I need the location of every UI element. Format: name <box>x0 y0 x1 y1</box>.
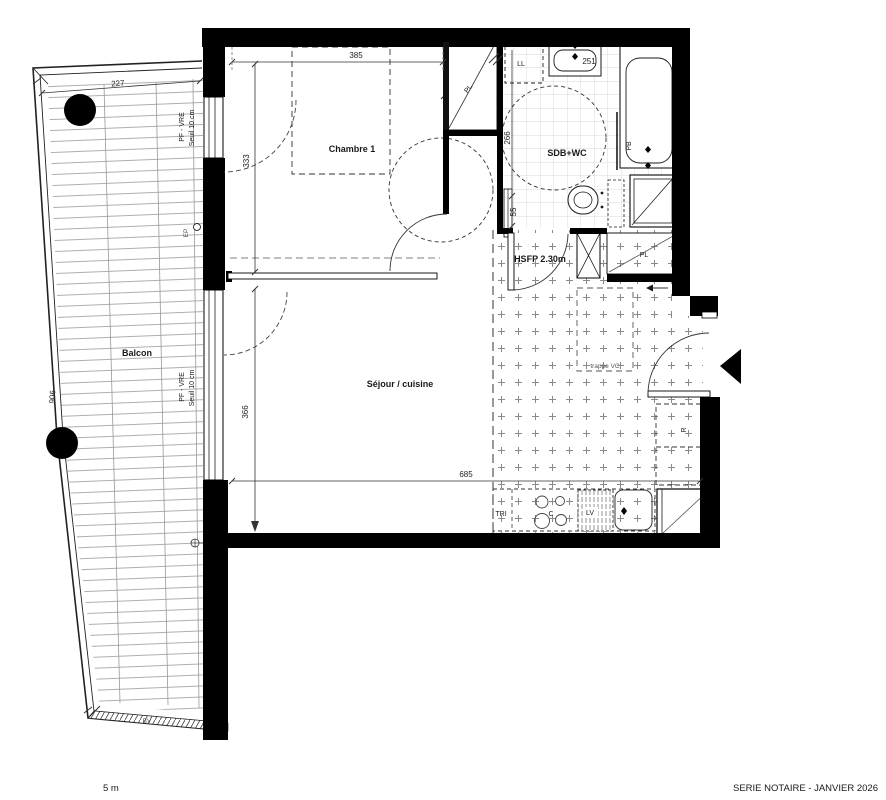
label-pl-hall: PL <box>640 252 649 259</box>
wall-sdb-bottom-2 <box>570 228 607 234</box>
wall-chambre-hall <box>443 136 449 214</box>
wall-bottom <box>228 533 720 548</box>
dim-385-line <box>229 47 446 72</box>
window-balcony-sejour <box>204 290 223 480</box>
label-chambre: Chambre 1 <box>329 144 376 154</box>
chambre-closet <box>447 42 497 130</box>
dim-366: 366 <box>241 405 250 419</box>
label-pf-vre-top: PF - VRE <box>179 112 186 142</box>
entrance-arrow-icon <box>720 349 741 384</box>
wall-left-a <box>203 47 225 97</box>
scale-label: 5 m <box>103 783 119 794</box>
series-label: SERIE NOTAIRE - JANVIER 2026 <box>733 783 878 794</box>
label-tri: TRI <box>495 511 506 518</box>
partition-chambre-sejour <box>228 273 437 279</box>
ep-downpipe-icon <box>194 224 201 231</box>
dim-266: 266 <box>503 131 512 145</box>
label-hsfp: HSFP 2.30m <box>514 254 566 264</box>
label-pb: PB <box>626 141 633 151</box>
bed-dashed-outline <box>292 47 390 174</box>
chambre-turning-circle <box>389 138 493 242</box>
label-fridge: R <box>681 427 688 432</box>
floor-plan-page: Chambre 1 SDB+WC Séjour / cuisine Balcon… <box>0 0 886 800</box>
balcony <box>33 61 228 731</box>
label-sdb: SDB+WC <box>547 148 587 158</box>
duct-shaft <box>577 233 600 278</box>
wall-left-c <box>203 480 228 740</box>
label-seuil-bottom: Seuil 10 cm <box>189 370 196 407</box>
label-ll: LL <box>517 61 525 68</box>
window-balcony-chambre <box>204 97 223 158</box>
dim-227: 227 <box>111 79 125 89</box>
wall-left-b <box>203 158 225 290</box>
dim-333-line <box>252 61 258 275</box>
label-pf-vre-bottom: PF - VRE <box>179 372 186 402</box>
window-swing-sejour <box>224 292 287 355</box>
window-swing-chambre <box>224 100 296 172</box>
balcony-column-top <box>64 94 96 126</box>
wall-closet-left-bar <box>443 42 449 130</box>
label-trappe-vc: trappe VC <box>590 363 620 370</box>
label-dishwasher: LV <box>586 510 594 517</box>
dim-251: 251 <box>582 57 596 66</box>
wall-closet-bottom-bar <box>607 274 677 282</box>
balcony-column-bottom <box>46 427 78 459</box>
dim-333: 333 <box>242 154 251 168</box>
floor-plan-svg: Chambre 1 SDB+WC Séjour / cuisine Balcon… <box>0 0 886 800</box>
dim-55: 55 <box>509 207 518 216</box>
chambre-door-swing <box>390 214 447 271</box>
label-ep: EP <box>183 229 190 238</box>
label-balcon: Balcon <box>122 348 152 358</box>
wall-below-closet <box>443 130 497 136</box>
water-heater <box>630 175 676 227</box>
dim-366-line <box>251 286 259 532</box>
wall-right-upper <box>672 28 690 296</box>
wall-right-lower <box>700 397 720 548</box>
footer: 5 m SERIE NOTAIRE - JANVIER 2026 <box>103 783 878 794</box>
dim-685: 685 <box>459 470 473 479</box>
label-cooktop: C <box>548 511 553 518</box>
label-seuil-top: Seuil 10 cm <box>189 110 196 147</box>
dim-385: 385 <box>349 51 363 60</box>
label-bv: BV <box>143 718 152 725</box>
dim-906: 906 <box>48 389 58 403</box>
label-sejour: Séjour / cuisine <box>367 379 434 389</box>
